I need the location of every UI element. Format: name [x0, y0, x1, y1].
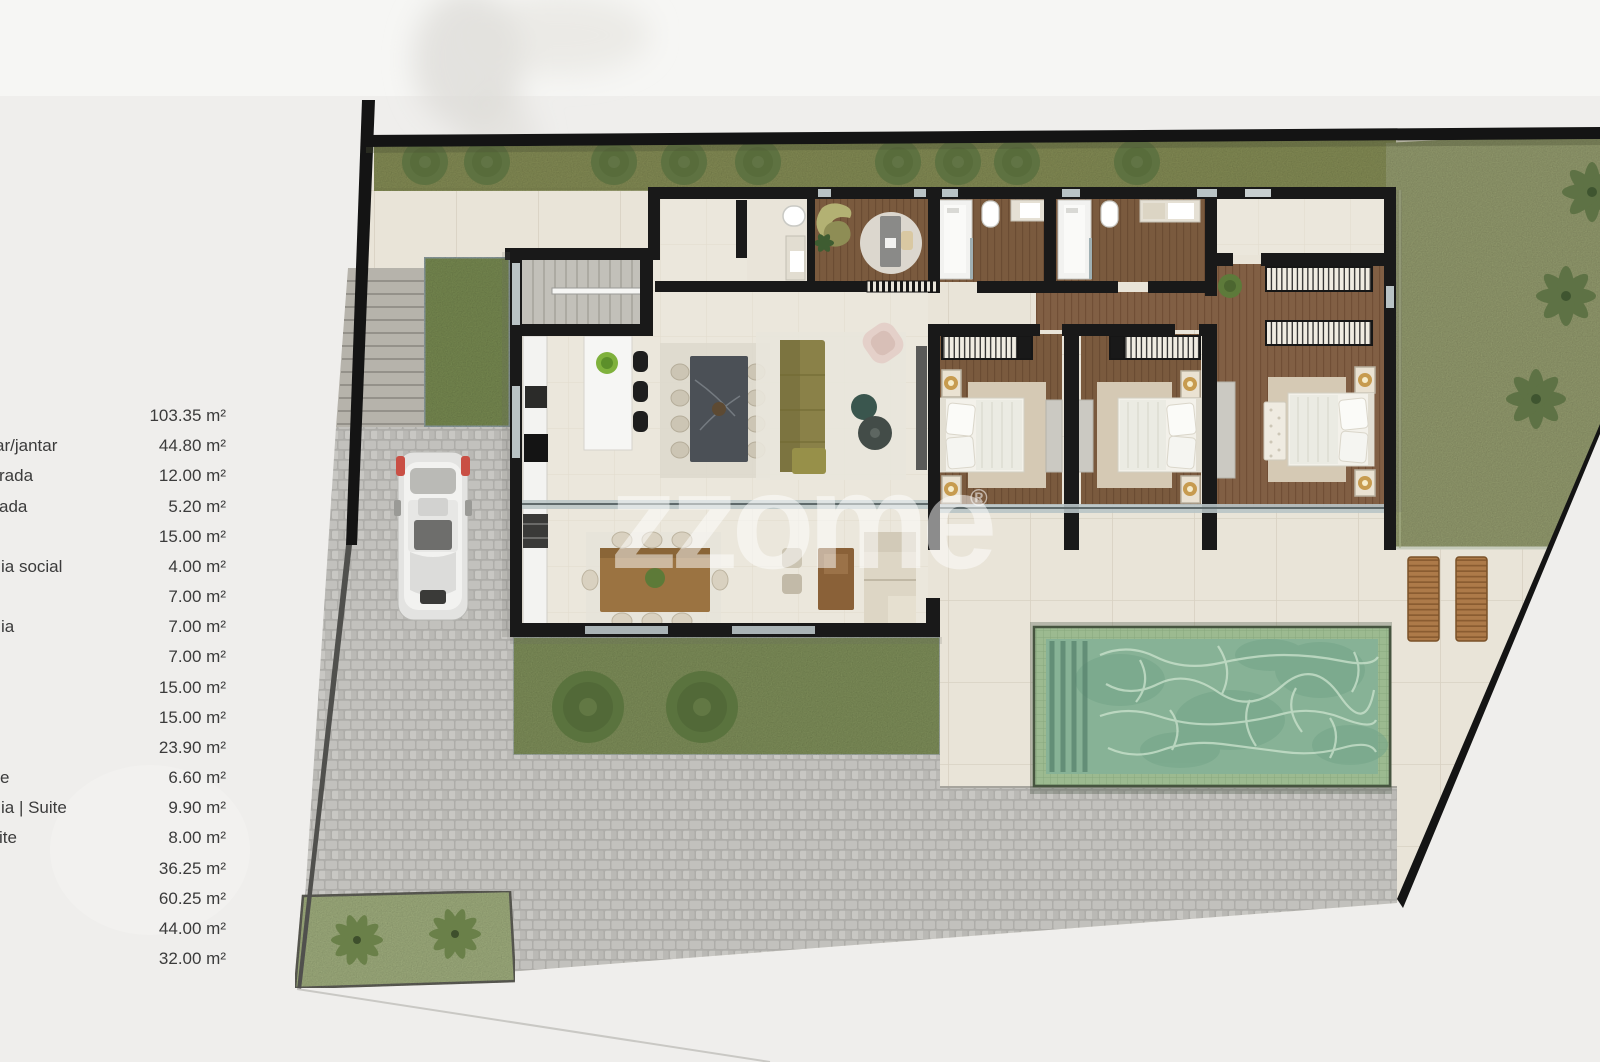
svg-text:®: ® — [970, 485, 988, 512]
svg-text:zzome: zzome — [610, 445, 993, 597]
